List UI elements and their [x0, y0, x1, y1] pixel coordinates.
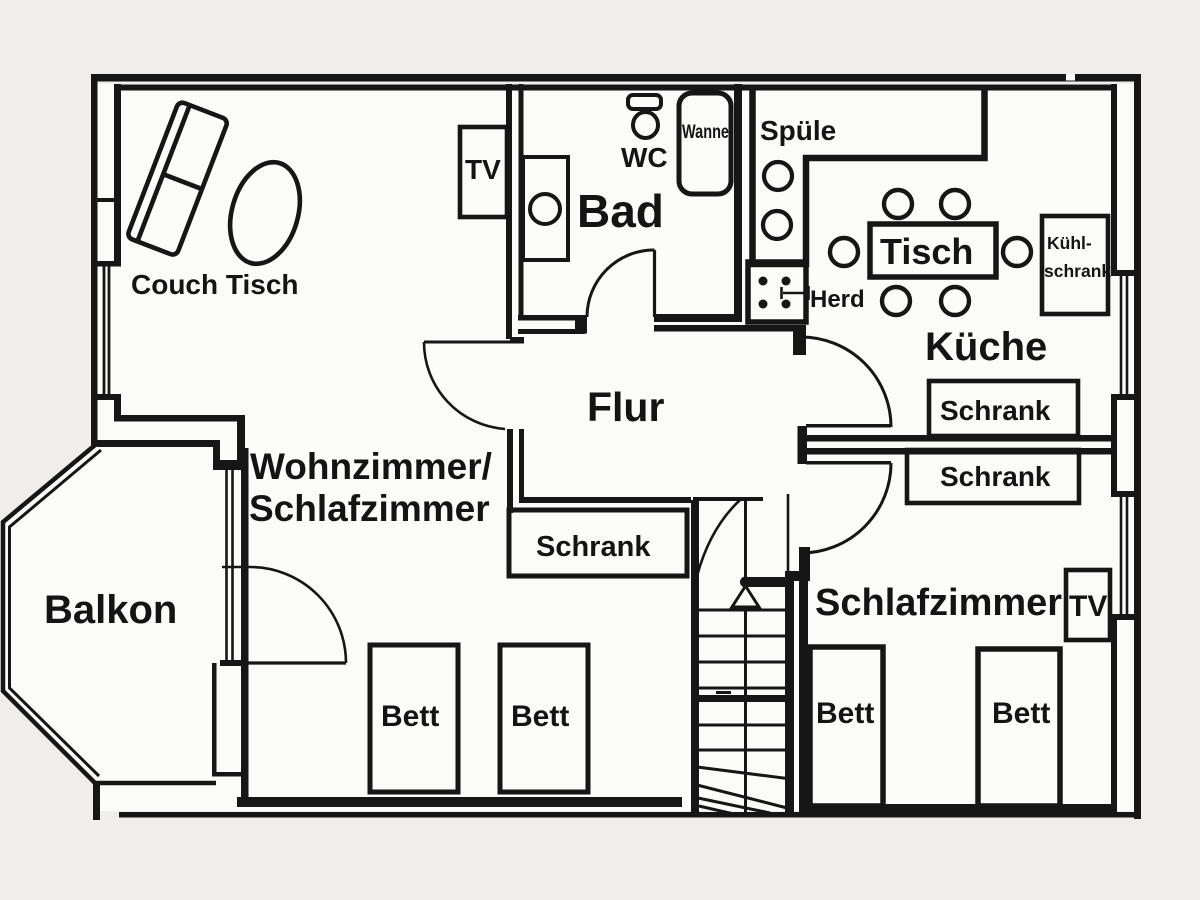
svg-text:schrank: schrank — [1044, 261, 1111, 281]
svg-text:Schrank: Schrank — [940, 461, 1051, 492]
svg-text:Balkon: Balkon — [44, 588, 177, 632]
svg-text:Tisch: Tisch — [880, 231, 973, 272]
svg-text:Küche: Küche — [925, 325, 1047, 369]
svg-text:Herd: Herd — [810, 286, 865, 313]
svg-text:Spüle: Spüle — [760, 115, 836, 146]
svg-text:Wanne: Wanne — [682, 122, 729, 143]
svg-text:Schlafzimmer: Schlafzimmer — [249, 488, 490, 529]
svg-text:TV: TV — [1069, 590, 1107, 623]
svg-text:Schlafzimmer: Schlafzimmer — [815, 582, 1062, 624]
svg-text:WC: WC — [621, 142, 668, 173]
svg-text:Bett: Bett — [381, 700, 439, 733]
svg-text:Bett: Bett — [992, 697, 1050, 730]
svg-text:Bett: Bett — [511, 700, 569, 733]
svg-text:Bett: Bett — [816, 697, 874, 730]
svg-text:Schrank: Schrank — [940, 395, 1051, 426]
svg-text:Couch Tisch: Couch Tisch — [131, 269, 299, 300]
svg-text:Wohnzimmer/: Wohnzimmer/ — [250, 446, 492, 487]
svg-text:TV: TV — [465, 154, 501, 185]
svg-text:Kühl-: Kühl- — [1047, 233, 1092, 253]
svg-text:Flur: Flur — [587, 384, 664, 430]
svg-text:Schrank: Schrank — [536, 531, 651, 563]
svg-text:Bad: Bad — [577, 185, 664, 237]
